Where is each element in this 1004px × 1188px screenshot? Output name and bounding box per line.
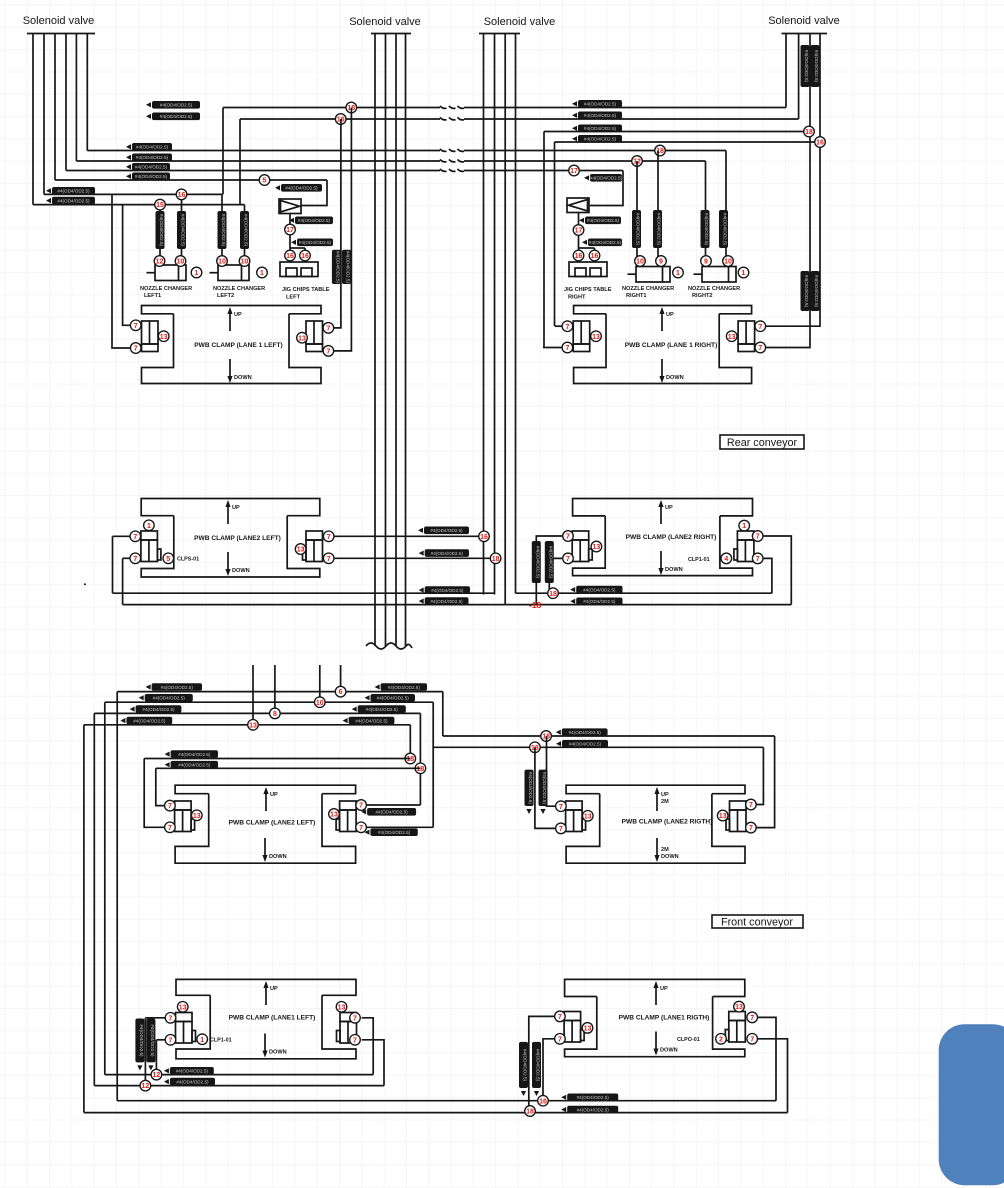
svg-text:13: 13 bbox=[298, 335, 306, 342]
svg-text:1: 1 bbox=[676, 270, 680, 277]
svg-text:1: 1 bbox=[147, 523, 151, 530]
svg-text:7: 7 bbox=[168, 825, 172, 832]
svg-text:18: 18 bbox=[406, 756, 414, 763]
svg-text:#4(OD4/OD2.5): #4(OD4/OD2.5) bbox=[584, 102, 617, 107]
svg-text:#4(OD4/OD2.5): #4(OD4/OD2.5) bbox=[355, 718, 388, 723]
svg-text:#4(OD4/OD2.5): #4(OD4/OD2.5) bbox=[577, 1107, 610, 1112]
svg-text:#4(OD4/OD2.5): #4(OD4/OD2.5) bbox=[388, 685, 421, 690]
svg-text:7: 7 bbox=[326, 349, 330, 356]
svg-text:#4(OD4/OD2.5): #4(OD4/OD2.5) bbox=[160, 103, 193, 108]
svg-text:#4(OD4/OD2.5): #4(OD4/OD2.5) bbox=[431, 599, 464, 604]
svg-text:7: 7 bbox=[758, 324, 762, 331]
svg-text:#4(OD4/OD2.5): #4(OD4/OD2.5) bbox=[535, 546, 540, 579]
svg-text:#4(OD4/OD2.5): #4(OD4/OD2.5) bbox=[587, 218, 620, 223]
svg-text:10: 10 bbox=[177, 259, 185, 266]
svg-text:#4(OD4/OD2.5): #4(OD4/OD2.5) bbox=[136, 155, 169, 160]
svg-text:16: 16 bbox=[816, 140, 824, 147]
svg-text:RIGHT2: RIGHT2 bbox=[692, 293, 713, 299]
svg-text:#4(OD4/OD2.5): #4(OD4/OD2.5) bbox=[814, 275, 819, 308]
svg-text:#4(OD4/OD2.5): #4(OD4/OD2.5) bbox=[569, 730, 602, 735]
svg-text:NOZZLE CHANGER: NOZZLE CHANGER bbox=[140, 286, 192, 292]
svg-text:7: 7 bbox=[750, 1015, 754, 1022]
svg-text:#4(OD4/OD2.5): #4(OD4/OD2.5) bbox=[704, 213, 709, 246]
svg-text:7: 7 bbox=[565, 324, 569, 331]
svg-text:7: 7 bbox=[133, 534, 137, 541]
svg-text:13: 13 bbox=[584, 813, 592, 820]
svg-text:7: 7 bbox=[559, 826, 563, 833]
svg-text:#4(OD4/OD2.5): #4(OD4/OD2.5) bbox=[335, 251, 340, 284]
svg-text:CLPO-01: CLPO-01 bbox=[677, 1037, 700, 1043]
svg-text:UP: UP bbox=[661, 792, 669, 798]
svg-text:#4(OD4/OD2.5): #4(OD4/OD2.5) bbox=[583, 599, 616, 604]
svg-text:RIGHT1: RIGHT1 bbox=[626, 293, 647, 299]
svg-text:PWB CLAMP (LANE2 RIGHT): PWB CLAMP (LANE2 RIGHT) bbox=[626, 534, 717, 541]
svg-text:DOWN: DOWN bbox=[234, 375, 252, 381]
svg-text:#4(OD4/OD2.5): #4(OD4/OD2.5) bbox=[431, 551, 464, 556]
svg-text:PWB CLAMP (LANE1 LEFT): PWB CLAMP (LANE1 LEFT) bbox=[229, 1015, 316, 1022]
svg-text:10: 10 bbox=[241, 259, 249, 266]
svg-text:2M: 2M bbox=[661, 847, 669, 853]
svg-text:#4(OD4/OD2.5): #4(OD4/OD2.5) bbox=[299, 240, 332, 245]
svg-text:#4(OD4/OD2.5): #4(OD4/OD2.5) bbox=[723, 213, 728, 246]
svg-text:DOWN: DOWN bbox=[232, 568, 250, 574]
svg-text:7: 7 bbox=[756, 556, 760, 563]
svg-text:Solenoid valve: Solenoid valve bbox=[768, 15, 840, 27]
svg-text:#4(OD4/OD2.5): #4(OD4/OD2.5) bbox=[150, 1024, 155, 1057]
svg-text:7: 7 bbox=[558, 1036, 562, 1043]
svg-text:#4(OD4/OD2.5): #4(OD4/OD2.5) bbox=[657, 213, 662, 246]
svg-text:18: 18 bbox=[492, 556, 500, 563]
svg-text:10: 10 bbox=[724, 259, 732, 266]
svg-text:PWB CLAMP (LANE2 RIGTH): PWB CLAMP (LANE2 RIGTH) bbox=[622, 819, 713, 826]
svg-text:7: 7 bbox=[169, 1015, 173, 1022]
svg-text:16: 16 bbox=[539, 1098, 547, 1105]
svg-text:DOWN: DOWN bbox=[665, 567, 683, 573]
svg-text:LEFT2: LEFT2 bbox=[217, 293, 234, 299]
svg-text:7: 7 bbox=[353, 1037, 357, 1044]
svg-text:13: 13 bbox=[330, 812, 338, 819]
svg-text:#4(OD4/OD2.5): #4(OD4/OD2.5) bbox=[523, 1049, 528, 1082]
svg-text:16: 16 bbox=[301, 253, 309, 260]
svg-text:7: 7 bbox=[756, 534, 760, 541]
svg-text:Rear conveyor: Rear conveyor bbox=[727, 437, 798, 449]
svg-text:JIG CHIPS TABLE: JIG CHIPS TABLE bbox=[564, 287, 612, 293]
svg-text:7: 7 bbox=[134, 346, 138, 353]
svg-text:#4(OD4/OD2.5): #4(OD4/OD2.5) bbox=[181, 214, 186, 247]
svg-text:12: 12 bbox=[142, 1083, 150, 1090]
svg-text:#4(OD4/OD2.5): #4(OD4/OD2.5) bbox=[378, 830, 411, 835]
svg-text:7: 7 bbox=[133, 556, 137, 563]
svg-text:16: 16 bbox=[178, 192, 186, 199]
svg-text:16: 16 bbox=[575, 253, 583, 260]
svg-text:#4(OD4/OD2.5): #4(OD4/OD2.5) bbox=[542, 772, 547, 805]
svg-text:7: 7 bbox=[749, 802, 753, 809]
svg-text:7: 7 bbox=[359, 803, 363, 810]
svg-text:7: 7 bbox=[353, 1015, 357, 1022]
svg-text:1: 1 bbox=[200, 1037, 204, 1044]
svg-text:Front conveyor: Front conveyor bbox=[721, 916, 793, 928]
svg-text:DOWN: DOWN bbox=[269, 854, 287, 860]
svg-text:CLP1-01: CLP1-01 bbox=[210, 1038, 232, 1044]
svg-text:#4(OD4/OD2.5): #4(OD4/OD2.5) bbox=[584, 126, 617, 131]
svg-text:8: 8 bbox=[273, 711, 277, 718]
svg-text:#4(OD4/OD2.5): #4(OD4/OD2.5) bbox=[583, 587, 616, 592]
svg-text:16: 16 bbox=[591, 253, 599, 260]
svg-text:7: 7 bbox=[327, 556, 331, 563]
svg-text:#4(OD4/OD2.5): #4(OD4/OD2.5) bbox=[548, 546, 553, 579]
svg-text:17: 17 bbox=[575, 228, 583, 235]
svg-text:#4(OD4/OD2.5): #4(OD4/OD2.5) bbox=[176, 1069, 209, 1074]
svg-text:#4(OD4/OD2.5): #4(OD4/OD2.5) bbox=[569, 742, 602, 747]
svg-text:#4(OD4/OD2.5): #4(OD4/OD2.5) bbox=[244, 214, 249, 247]
svg-text:UP: UP bbox=[660, 986, 668, 992]
svg-text:13: 13 bbox=[728, 334, 736, 341]
svg-text:17: 17 bbox=[570, 168, 578, 175]
svg-text:12: 12 bbox=[153, 1072, 161, 1079]
svg-text:7: 7 bbox=[566, 556, 570, 563]
svg-text:18: 18 bbox=[805, 129, 813, 136]
svg-text:13: 13 bbox=[338, 1004, 346, 1011]
svg-text:13: 13 bbox=[735, 1004, 743, 1011]
svg-text:DOWN: DOWN bbox=[666, 375, 684, 381]
svg-text:#4(OD4/OD2.5): #4(OD4/OD2.5) bbox=[57, 189, 90, 194]
svg-text:7: 7 bbox=[559, 804, 563, 811]
svg-text:UP: UP bbox=[666, 312, 674, 318]
svg-text:#4(OD4/OD2.5): #4(OD4/OD2.5) bbox=[178, 763, 211, 768]
svg-text:#4(OD4/OD2.5): #4(OD4/OD2.5) bbox=[430, 528, 463, 533]
svg-text:9: 9 bbox=[659, 259, 663, 266]
svg-text:13: 13 bbox=[719, 813, 727, 820]
svg-text:16: 16 bbox=[286, 253, 294, 260]
svg-text:#4(OD4/OD2.5): #4(OD4/OD2.5) bbox=[804, 275, 809, 308]
svg-text:7: 7 bbox=[758, 345, 762, 352]
svg-text:UP: UP bbox=[665, 505, 673, 511]
svg-text:9: 9 bbox=[704, 259, 708, 266]
svg-text:UP: UP bbox=[232, 505, 240, 511]
svg-text:#4(OD4/OD2.5): #4(OD4/OD2.5) bbox=[135, 165, 168, 170]
svg-text:JIG CHIPS TABLE: JIG CHIPS TABLE bbox=[282, 287, 330, 293]
svg-text:#4(OD4/OD2.5): #4(OD4/OD2.5) bbox=[142, 707, 175, 712]
svg-text:7: 7 bbox=[566, 534, 570, 541]
svg-text:1: 1 bbox=[742, 523, 746, 530]
svg-text:4: 4 bbox=[724, 556, 728, 563]
svg-text:2M: 2M bbox=[661, 799, 669, 805]
svg-text:LEFT: LEFT bbox=[286, 295, 301, 301]
svg-text:5: 5 bbox=[166, 556, 170, 563]
svg-text:#4(OD4/OD2.5): #4(OD4/OD2.5) bbox=[431, 588, 464, 593]
svg-text:#4(OD4/OD2.5): #4(OD4/OD2.5) bbox=[176, 1079, 209, 1084]
svg-text:#4(OD4/OD2.5): #4(OD4/OD2.5) bbox=[376, 810, 409, 815]
svg-text:CLP1-01: CLP1-01 bbox=[688, 557, 710, 563]
svg-text:#4(OD4/OD2.5): #4(OD4/OD2.5) bbox=[636, 213, 641, 246]
svg-text:6: 6 bbox=[339, 689, 343, 696]
svg-text:16: 16 bbox=[480, 534, 488, 541]
svg-text:PWB CLAMP (LANE2 LEFT): PWB CLAMP (LANE2 LEFT) bbox=[194, 535, 281, 542]
svg-text:#4(OD4/OD2.5): #4(OD4/OD2.5) bbox=[590, 176, 623, 181]
svg-text:#4(OD4/OD2.5): #4(OD4/OD2.5) bbox=[814, 50, 819, 83]
svg-text:#4(OD4/OD2.5): #4(OD4/OD2.5) bbox=[160, 114, 193, 119]
svg-text:PWB CLAMP (LANE 1 LEFT): PWB CLAMP (LANE 1 LEFT) bbox=[194, 342, 283, 349]
svg-text:13: 13 bbox=[249, 722, 257, 729]
svg-text:18: 18 bbox=[417, 766, 425, 773]
svg-text:7: 7 bbox=[565, 345, 569, 352]
svg-text:UP: UP bbox=[270, 792, 278, 798]
svg-text:#4(OD4/OD2.5): #4(OD4/OD2.5) bbox=[136, 145, 169, 150]
svg-text:7: 7 bbox=[558, 1014, 562, 1021]
svg-text:13: 13 bbox=[160, 334, 168, 341]
svg-text:#4(OD4/OD2.5): #4(OD4/OD2.5) bbox=[345, 251, 350, 284]
svg-text:LEFT1: LEFT1 bbox=[144, 293, 161, 299]
svg-text:#4(OD4/OD2.5): #4(OD4/OD2.5) bbox=[139, 1024, 144, 1057]
svg-text:13: 13 bbox=[584, 1026, 592, 1033]
svg-text:1: 1 bbox=[742, 270, 746, 277]
svg-text:7: 7 bbox=[168, 803, 172, 810]
svg-text:10: 10 bbox=[218, 259, 226, 266]
svg-text:NOZZLE CHANGER: NOZZLE CHANGER bbox=[622, 286, 674, 292]
svg-text:Solenoid valve: Solenoid valve bbox=[349, 16, 421, 28]
svg-text:#4(OD4/OD2.5): #4(OD4/OD2.5) bbox=[589, 240, 622, 245]
svg-text:2: 2 bbox=[719, 1036, 723, 1043]
svg-text:RIGHT: RIGHT bbox=[568, 295, 586, 301]
svg-text:#4(OD4/OD2.5): #4(OD4/OD2.5) bbox=[377, 696, 410, 701]
svg-text:15: 15 bbox=[156, 202, 164, 209]
svg-text:#4(OD4/OD2.5): #4(OD4/OD2.5) bbox=[804, 50, 809, 83]
svg-text:7: 7 bbox=[326, 326, 330, 333]
svg-text:#4(OD4/OD2.5): #4(OD4/OD2.5) bbox=[298, 218, 331, 223]
svg-text:#4(OD4/OD2.5): #4(OD4/OD2.5) bbox=[584, 113, 617, 118]
svg-text:#4(OD4/OD2.5): #4(OD4/OD2.5) bbox=[57, 198, 90, 203]
svg-text:#4(OD4/OD2.5): #4(OD4/OD2.5) bbox=[221, 214, 226, 247]
svg-text:Solenoid valve: Solenoid valve bbox=[23, 15, 95, 27]
svg-text:13: 13 bbox=[592, 334, 600, 341]
svg-text:#4(OD4/OD2.5): #4(OD4/OD2.5) bbox=[577, 1095, 610, 1100]
svg-text:13: 13 bbox=[593, 544, 601, 551]
svg-text:#4(OD4/OD2.5): #4(OD4/OD2.5) bbox=[285, 186, 318, 191]
svg-text:10: 10 bbox=[636, 259, 644, 266]
svg-text:DOWN: DOWN bbox=[269, 1050, 287, 1056]
svg-text:#4(OD4/OD2.5): #4(OD4/OD2.5) bbox=[135, 174, 168, 179]
svg-text:#4(OD4/OD2.5): #4(OD4/OD2.5) bbox=[366, 707, 399, 712]
svg-text:UP: UP bbox=[234, 312, 242, 318]
svg-text:NOZZLE CHANGER: NOZZLE CHANGER bbox=[213, 286, 265, 292]
svg-text:NOZZLE CHANGER: NOZZLE CHANGER bbox=[688, 286, 740, 292]
svg-text:13: 13 bbox=[297, 547, 305, 554]
svg-text:13: 13 bbox=[179, 1004, 187, 1011]
svg-text:PWB CLAMP (LANE2 LEFT): PWB CLAMP (LANE2 LEFT) bbox=[229, 820, 316, 827]
svg-text:#4(OD4/OD2.5): #4(OD4/OD2.5) bbox=[161, 685, 194, 690]
svg-text:5: 5 bbox=[263, 178, 267, 185]
svg-text:17: 17 bbox=[286, 227, 294, 234]
svg-text:12: 12 bbox=[156, 259, 164, 266]
svg-text:UP: UP bbox=[270, 986, 278, 992]
svg-text:7: 7 bbox=[327, 534, 331, 541]
svg-text:7: 7 bbox=[749, 825, 753, 832]
svg-text:7: 7 bbox=[359, 825, 363, 832]
svg-text:#4(OD4/OD2.5): #4(OD4/OD2.5) bbox=[159, 214, 164, 247]
svg-text:18: 18 bbox=[526, 1109, 534, 1116]
svg-text:#4(OD4/OD2.5): #4(OD4/OD2.5) bbox=[584, 137, 617, 142]
svg-text:#4(OD4/OD2.5): #4(OD4/OD2.5) bbox=[536, 1049, 541, 1082]
svg-text:DOWN: DOWN bbox=[661, 854, 679, 860]
svg-text:13: 13 bbox=[193, 813, 201, 820]
svg-text:PWB CLAMP (LANE1 RIGTH): PWB CLAMP (LANE1 RIGTH) bbox=[619, 1015, 710, 1022]
svg-text:#4(OD4/OD2.5): #4(OD4/OD2.5) bbox=[528, 772, 533, 805]
svg-text:1: 1 bbox=[260, 270, 264, 277]
svg-text:-18: -18 bbox=[529, 600, 542, 610]
svg-text:#4(OD4/OD2.5): #4(OD4/OD2.5) bbox=[153, 696, 186, 701]
svg-text:18: 18 bbox=[549, 591, 557, 598]
svg-text:1: 1 bbox=[195, 270, 199, 277]
svg-text:CLPS-01: CLPS-01 bbox=[177, 557, 199, 563]
svg-text:7: 7 bbox=[169, 1037, 173, 1044]
svg-text:7: 7 bbox=[750, 1036, 754, 1043]
svg-text:#4(OD4/OD2.5): #4(OD4/OD2.5) bbox=[178, 752, 211, 757]
svg-text:7: 7 bbox=[134, 323, 138, 330]
svg-text:DOWN: DOWN bbox=[660, 1048, 678, 1054]
svg-text:10: 10 bbox=[316, 700, 324, 707]
svg-text:PWB CLAMP (LANE 1 RIGHT): PWB CLAMP (LANE 1 RIGHT) bbox=[625, 342, 718, 349]
svg-text:Solenoid valve: Solenoid valve bbox=[484, 16, 556, 28]
svg-text:#4(OD4/OD2.5): #4(OD4/OD2.5) bbox=[133, 718, 166, 723]
